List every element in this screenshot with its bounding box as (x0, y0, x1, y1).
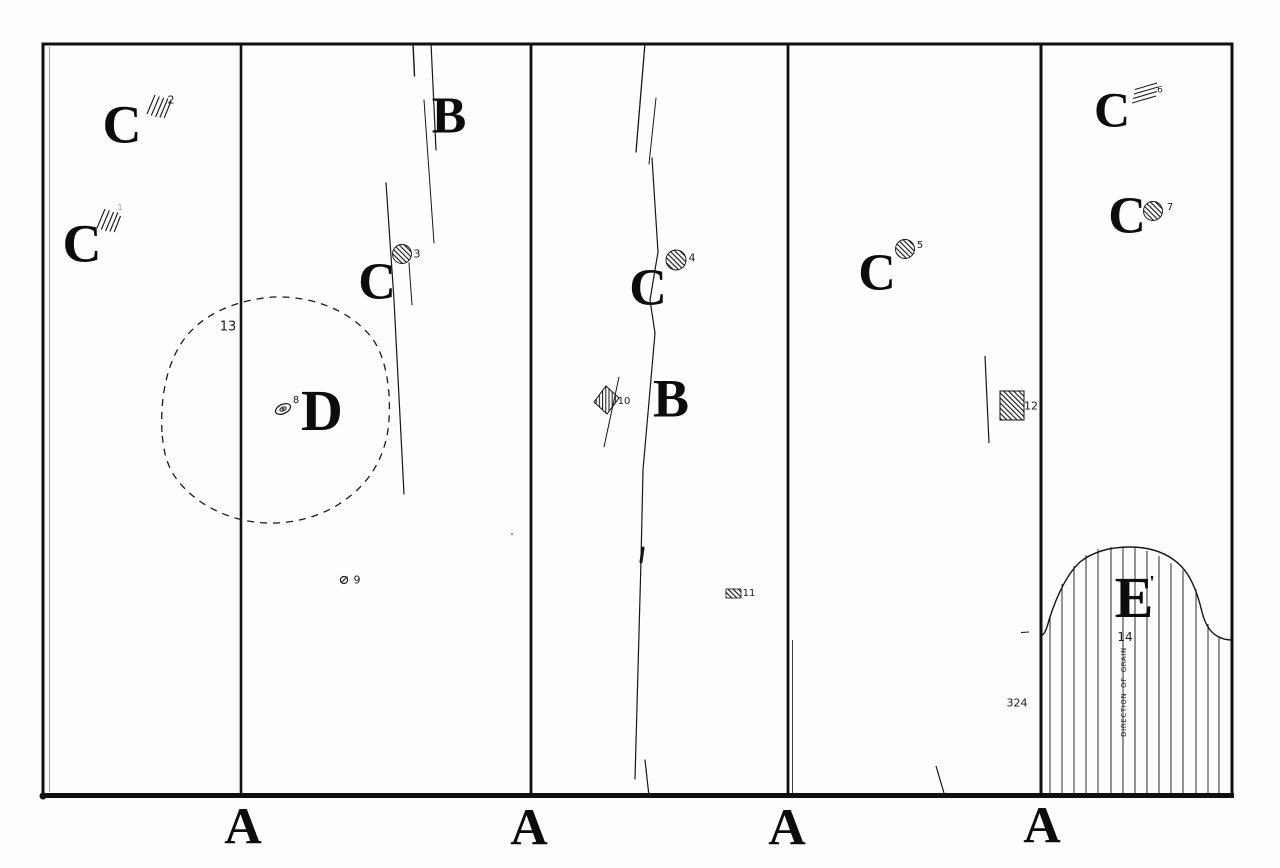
knot-7 (1144, 202, 1163, 221)
label-C5: C (858, 247, 896, 299)
knot-4 (666, 250, 686, 270)
label-A2: A (510, 802, 548, 854)
patch-11 (726, 589, 741, 598)
pin-knot-9 (340, 576, 347, 583)
ref-num-5: 5 (917, 241, 923, 251)
label-C6: C (1094, 85, 1130, 135)
label-A4: A (1023, 800, 1061, 852)
patch-12 (985, 356, 1024, 443)
direction-of-grain-label: DIRECTION OF GRAIN (1120, 642, 1128, 742)
label-B1: B (432, 90, 467, 142)
tick-mark (1021, 632, 1029, 633)
label-E: E (1115, 569, 1154, 627)
label-C7: C (1108, 190, 1146, 242)
ref-num-11: 11 (743, 589, 756, 599)
ref-num-3: 3 (414, 249, 421, 260)
sheet-border (40, 44, 1235, 800)
label-B2: B (653, 371, 689, 425)
ref-num-7: 7 (1167, 203, 1173, 213)
patch-10 (594, 377, 619, 447)
ref-num-6: 6 (1157, 87, 1163, 96)
label-A1: A (224, 801, 262, 853)
label-C4: C (629, 262, 667, 314)
corner-dot (40, 793, 47, 800)
round-knots (393, 202, 1163, 271)
ref-num-9: 9 (354, 575, 361, 586)
label-C3: C (358, 256, 396, 308)
crack-panel2 (386, 183, 412, 494)
ref-num-10: 10 (618, 397, 631, 407)
label-C1: C (103, 97, 142, 151)
knot-patch-6 (1132, 83, 1158, 103)
ref-num-324: 324 (1007, 698, 1028, 709)
ref-num-8: 8 (293, 396, 299, 406)
speck (511, 533, 513, 535)
label-D: D (301, 382, 343, 440)
diagram-linework (0, 0, 1280, 868)
ref-num-12: 12 (1024, 401, 1038, 412)
figure-canvas: C C C C C C C B B D E ' A A A A 1 2 3 4 … (0, 0, 1280, 868)
label-C2: C (63, 216, 102, 270)
knot-5 (896, 240, 915, 259)
label-A3: A (768, 802, 806, 854)
ref-num-2: 2 (168, 95, 175, 106)
ref-num-4: 4 (689, 253, 696, 264)
label-E-tick: ' (1149, 573, 1155, 593)
ref-num-13: 13 (220, 321, 237, 334)
small-check-bottom (936, 766, 944, 793)
panel-joint-lines (241, 46, 1041, 795)
pin-knot-8 (274, 401, 292, 416)
ref-num-1: 1 (117, 204, 122, 212)
